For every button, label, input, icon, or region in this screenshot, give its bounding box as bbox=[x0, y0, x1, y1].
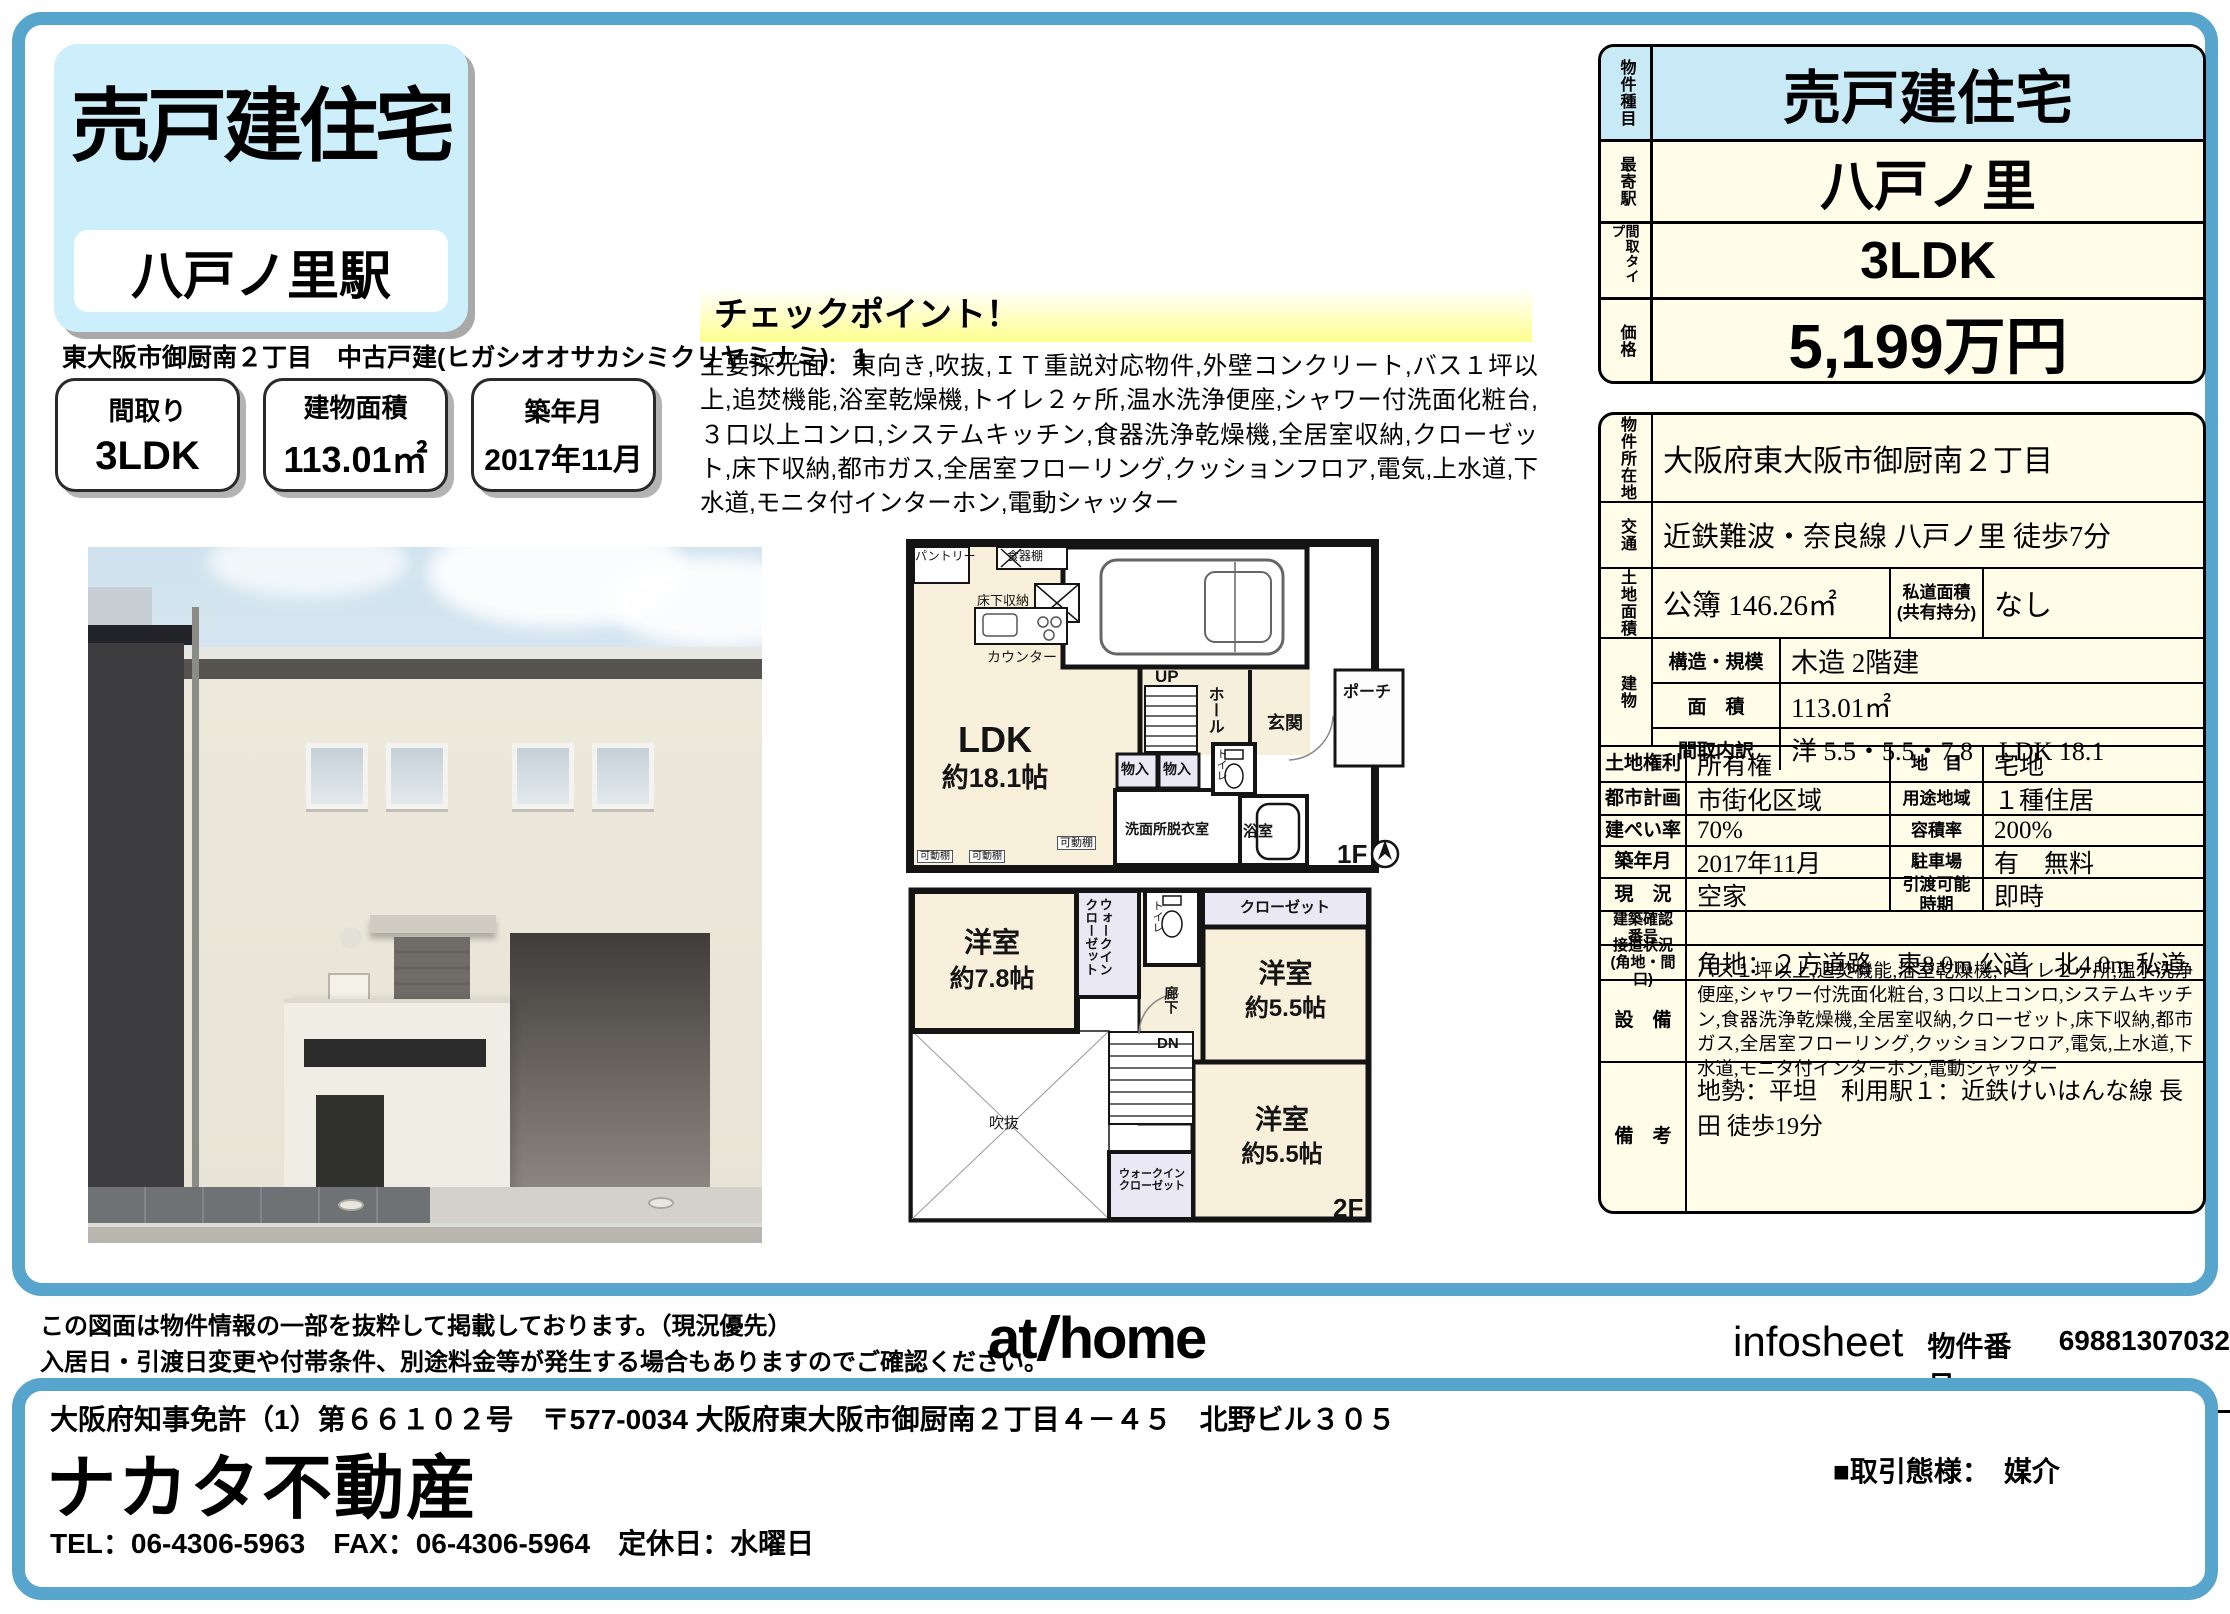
room-label-storage: 物入 bbox=[1121, 762, 1149, 777]
row-label: 物件種目 bbox=[1601, 47, 1653, 139]
row-value: 70% bbox=[1687, 816, 1889, 845]
row-label: 交通 bbox=[1601, 503, 1653, 567]
manhole bbox=[648, 1197, 674, 1209]
floorplan-1f: パントリー 食器棚 床下収納 カウンター LDK 約18.1帖 UP ホール 玄… bbox=[905, 538, 1410, 876]
row-value: 有 無料 bbox=[1984, 847, 2203, 877]
row-label-text: 土地面積 bbox=[1618, 569, 1634, 637]
athome-logo-home: home bbox=[1059, 1305, 1206, 1372]
row-value bbox=[1687, 912, 2203, 944]
row-label: 物件所在地 bbox=[1601, 415, 1653, 501]
athome-logo: at home bbox=[988, 1308, 1205, 1368]
row-value: 即時 bbox=[1984, 879, 2203, 910]
table-row-layout-type: 間取タイプ 3LDK bbox=[1601, 221, 2203, 297]
row-label: 設 備 bbox=[1601, 981, 1687, 1061]
row-label-text: 最寄駅 bbox=[1618, 156, 1634, 207]
window bbox=[512, 743, 574, 809]
utility-pole bbox=[192, 607, 199, 1197]
row-label: 土地面積 bbox=[1601, 569, 1653, 637]
room-label-yoshitsu78: 洋室 bbox=[927, 928, 1057, 959]
row-label: 駐車場 bbox=[1889, 847, 1984, 877]
detail-row-land: 土地面積 公簿 146.26㎡ 私道面積 (共有持分) なし bbox=[1601, 567, 2203, 637]
row-value: 売戸建住宅 bbox=[1653, 47, 2203, 139]
summary-value: 2017年11月 bbox=[484, 435, 642, 479]
row-value: バス１坪以上,追焚機能,浴室乾燥機,トイレ２ヶ所,温水洗浄便座,シャワー付洗面化… bbox=[1687, 981, 2203, 1061]
detail-row-building: 建物 構造・規模 木造 2階建 面 積 113.01㎡ 間取内訳 洋 5.5・5… bbox=[1601, 637, 2203, 745]
row-value: 近鉄難波・奈良線 八戸ノ里 徒歩7分 bbox=[1653, 503, 2203, 567]
row-label: 構造・規模 bbox=[1653, 639, 1781, 682]
room-label-yoshitsu55a-size: 約5.5帖 bbox=[1213, 996, 1358, 1022]
row-label: 現 況 bbox=[1601, 879, 1687, 910]
wall-lamp bbox=[340, 927, 362, 949]
room-label-shelf: 可動棚 bbox=[917, 850, 953, 863]
room-label-pantry: パントリー bbox=[915, 550, 976, 563]
row-value: 公簿 146.26㎡ bbox=[1653, 569, 1889, 637]
detail-row-confirmation: 建築確認 番号 bbox=[1601, 910, 2203, 944]
room-label-yoshitsu78-size: 約7.8帖 bbox=[913, 966, 1071, 994]
row-label: 最寄駅 bbox=[1601, 142, 1653, 221]
athome-logo-slash-icon bbox=[1036, 1315, 1060, 1361]
row-value: 市街化区域 bbox=[1687, 783, 1889, 814]
row-label: 土地権利 bbox=[1601, 747, 1687, 781]
room-label-wic: ウォークイン クローゼット bbox=[1083, 898, 1112, 994]
room-label-storage: 物入 bbox=[1163, 762, 1191, 777]
room-label-closet: クローゼット bbox=[1215, 900, 1355, 917]
window bbox=[306, 743, 368, 809]
room-label-yoshitsu55b: 洋室 bbox=[1217, 1106, 1347, 1136]
row-label: 容積率 bbox=[1889, 816, 1984, 845]
room-label-toilet: トイレ bbox=[1215, 748, 1227, 781]
station-box: 八戸ノ里駅 bbox=[74, 230, 448, 312]
flyer-page: 売戸建住宅 八戸ノ里駅 東大阪市御厨南２丁目 中古戸建(ヒガシオオサカシミクリヤ… bbox=[0, 0, 2230, 1614]
checkpoint-body: 主要採光面：東向き,吹抜,ＩＴ重説対応物件,外壁コンクリート,バス１坪以上,追焚… bbox=[700, 350, 1538, 521]
station-name: 八戸ノ里駅 bbox=[131, 234, 391, 309]
company-name: ナカタ不動産 bbox=[46, 1432, 478, 1533]
row-label-text: 交通 bbox=[1618, 518, 1634, 552]
summary-box-area: 建物面積 113.01㎡ bbox=[263, 378, 448, 492]
row-label: 引渡可能 時期 bbox=[1889, 879, 1984, 910]
floorplan-2f: 洋室 約7.8帖 ウォークイン クローゼット トイレ クローゼット 洋室 約5.… bbox=[905, 884, 1375, 1226]
room-label-ldk: LDK bbox=[930, 720, 1060, 760]
garage-opening bbox=[510, 933, 710, 1189]
neighbor-roof bbox=[88, 625, 198, 645]
summary-box-built: 築年月 2017年11月 bbox=[471, 378, 656, 492]
row-label-text: 間取タイプ bbox=[1612, 224, 1640, 297]
row-value: 大阪府東大阪市御厨南２丁目 bbox=[1653, 415, 2203, 501]
room-label-counter: カウンター bbox=[987, 650, 1057, 665]
room-label-porch: ポーチ bbox=[1343, 684, 1391, 702]
detail-row-built: 築年月 2017年11月 駐車場 有 無料 bbox=[1601, 845, 2203, 877]
room-label-toilet-2f: トイレ bbox=[1151, 900, 1163, 933]
house-roof bbox=[120, 659, 762, 681]
detail-row-coverage: 建ぺい率 70% 容積率 200% bbox=[1601, 814, 2203, 845]
room-label-dn: DN bbox=[1157, 1036, 1179, 1053]
row-label: 築年月 bbox=[1601, 847, 1687, 877]
detail-row-equipment: 設 備 バス１坪以上,追焚機能,浴室乾燥機,トイレ２ヶ所,温水洗浄便座,シャワー… bbox=[1601, 979, 2203, 1061]
row-value: 地勢：平坦 利用駅１：近鉄けいはんな線 長田 徒歩19分 bbox=[1687, 1063, 2203, 1211]
row-label: 地 目 bbox=[1889, 747, 1984, 781]
neighbor-house bbox=[88, 643, 184, 1199]
cloud bbox=[208, 547, 408, 597]
subrow-area: 面 積 113.01㎡ bbox=[1653, 682, 2203, 727]
row-label: 接道状況 (角地・間口) bbox=[1601, 946, 1687, 979]
row-value: 所有権 bbox=[1687, 747, 1889, 781]
detail-row-rights: 土地権利 所有権 地 目 宅地 bbox=[1601, 745, 2203, 781]
room-label-ldk-size: 約18.1帖 bbox=[915, 764, 1075, 794]
room-label-bath: 浴室 bbox=[1243, 824, 1273, 841]
room-label-hallway: 廊下 bbox=[1163, 986, 1178, 1014]
floor-label-2f: 2F bbox=[1333, 1194, 1363, 1223]
contact-line: TEL：06-4306-5963 FAX：06-4306-5964 定休日：水曜… bbox=[50, 1522, 814, 1562]
room-label-hall: ホール bbox=[1205, 686, 1223, 734]
building-subtable: 構造・規模 木造 2階建 面 積 113.01㎡ 間取内訳 洋 5.5・5.5・… bbox=[1653, 639, 2203, 745]
checkpoint-title: チェックポイント！ bbox=[700, 288, 1532, 342]
row-value: 木造 2階建 bbox=[1781, 639, 2203, 682]
room-label-shelf: 可動棚 bbox=[1057, 836, 1096, 850]
room-label-void: 吹抜 bbox=[989, 1116, 1019, 1133]
table-row-type: 物件種目 売戸建住宅 bbox=[1601, 47, 2203, 139]
summary-box-layout: 間取り 3LDK bbox=[55, 378, 240, 492]
road bbox=[88, 1223, 762, 1243]
table-row-station: 最寄駅 八戸ノ里 bbox=[1601, 139, 2203, 221]
property-type-table: 物件種目 売戸建住宅 最寄駅 八戸ノ里 間取タイプ 3LDK 価格 5,199万… bbox=[1598, 44, 2206, 384]
room-label-yoshitsu55b-size: 約5.5帖 bbox=[1207, 1142, 1357, 1168]
row-value: 八戸ノ里 bbox=[1653, 142, 2203, 221]
row-label: 間取タイプ bbox=[1601, 224, 1653, 297]
room-label-underfloor: 床下収納 bbox=[977, 594, 1029, 608]
row-label: 用途地域 bbox=[1889, 783, 1984, 814]
row-value: １種住居 bbox=[1984, 783, 2203, 814]
row-value: 3LDK bbox=[1653, 224, 2203, 297]
row-label: 都市計画 bbox=[1601, 783, 1687, 814]
summary-value: 113.01㎡ bbox=[283, 431, 427, 483]
row-value: 200% bbox=[1984, 816, 2203, 845]
page-title: 売戸建住宅 bbox=[54, 62, 468, 178]
room-label-dish-shelf: 食器棚 bbox=[1007, 550, 1043, 563]
subrow-structure: 構造・規模 木造 2階建 bbox=[1653, 639, 2203, 682]
detail-row-notes: 備 考 地勢：平坦 利用駅１：近鉄けいはんな線 長田 徒歩19分 bbox=[1601, 1061, 2203, 1211]
room-label-up: UP bbox=[1155, 668, 1179, 687]
manhole bbox=[338, 1199, 364, 1211]
front-wall bbox=[284, 999, 510, 1215]
detail-row-status: 現 況 空家 引渡可能 時期 即時 bbox=[1601, 877, 2203, 910]
disclaimer-line2: 入居日・引渡日変更や付帯条件、別途料金等が発生する場合もありますのでご確認くださ… bbox=[40, 1342, 1048, 1377]
infosheet-label: infosheet bbox=[1733, 1318, 1903, 1366]
row-value: 宅地 bbox=[1984, 747, 2203, 781]
row-value: 空家 bbox=[1687, 879, 1889, 910]
table-row-price: 価格 5,199万円 bbox=[1601, 297, 2203, 381]
room-label-washroom: 洗面所脱衣室 bbox=[1125, 822, 1209, 837]
row-label: 面 積 bbox=[1653, 684, 1781, 727]
room-label-yoshitsu55a: 洋室 bbox=[1223, 960, 1348, 990]
deal-type: ■取引態様： 媒介 bbox=[1833, 1450, 2060, 1490]
row-value: 113.01㎡ bbox=[1781, 684, 2203, 727]
floor-label-1f: 1F bbox=[1337, 840, 1367, 869]
summary-label: 間取り bbox=[108, 391, 186, 428]
detail-row-location: 物件所在地 大阪府東大阪市御厨南２丁目 bbox=[1601, 415, 2203, 501]
row-label-text: 物件種目 bbox=[1618, 59, 1634, 127]
door-canopy bbox=[370, 915, 496, 933]
mailbox-slot bbox=[304, 1039, 486, 1067]
property-detail-table: 物件所在地 大阪府東大阪市御厨南２丁目 交通 近鉄難波・奈良線 八戸ノ里 徒歩7… bbox=[1598, 412, 2206, 1214]
disclaimer-line1: この図面は物件情報の一部を抜粋して掲載しております。（現況優先） bbox=[40, 1306, 791, 1341]
room-label-shelf: 可動棚 bbox=[969, 850, 1005, 863]
row-label: 備 考 bbox=[1601, 1063, 1687, 1211]
property-photo bbox=[88, 547, 762, 1243]
row-label-private-road: 私道面積 (共有持分) bbox=[1889, 569, 1984, 637]
row-label-text: 建物 bbox=[1618, 675, 1634, 709]
detail-row-access: 交通 近鉄難波・奈良線 八戸ノ里 徒歩7分 bbox=[1601, 501, 2203, 567]
summary-label: 築年月 bbox=[524, 392, 602, 429]
window bbox=[386, 743, 448, 809]
row-label: 建物 bbox=[1601, 639, 1653, 745]
window bbox=[592, 743, 654, 809]
row-label-text: 価格 bbox=[1618, 324, 1634, 358]
row-value: 5,199万円 bbox=[1653, 300, 2203, 381]
room-label-wic2: ウォークイン クローゼット bbox=[1113, 1168, 1191, 1192]
row-label: 建ぺい率 bbox=[1601, 816, 1687, 845]
detail-row-city-plan: 都市計画 市街化区域 用途地域 １種住居 bbox=[1601, 781, 2203, 814]
row-label: 価格 bbox=[1601, 300, 1653, 381]
row-value: 2017年11月 bbox=[1687, 847, 1889, 877]
row-value: なし bbox=[1984, 569, 2203, 637]
row-label-text: 物件所在地 bbox=[1618, 416, 1634, 501]
athome-logo-at: at bbox=[988, 1305, 1036, 1372]
summary-value: 3LDK bbox=[95, 434, 199, 479]
summary-label: 建物面積 bbox=[303, 388, 407, 425]
room-label-entrance: 玄関 bbox=[1267, 714, 1303, 734]
